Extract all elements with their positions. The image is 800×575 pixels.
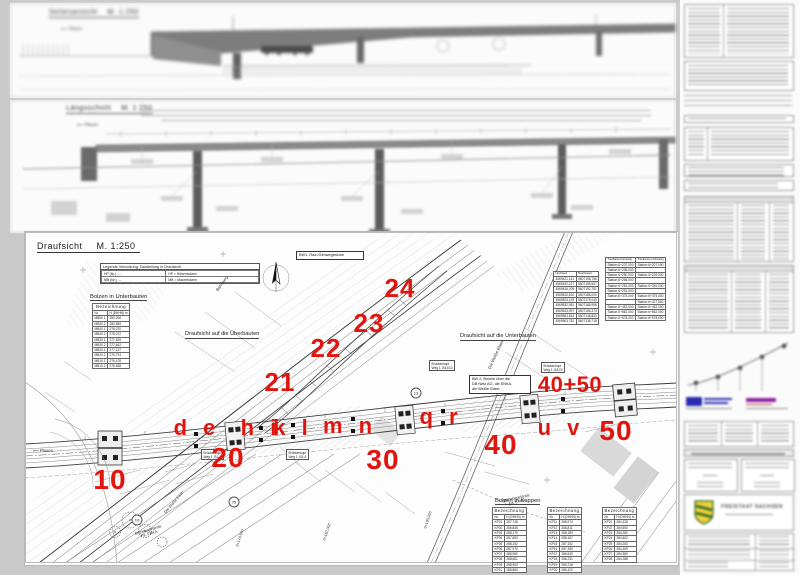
annotation-text-row — [161, 120, 641, 125]
table-cell: Station 6+239,000 — [635, 273, 665, 278]
circled-point: 13 — [411, 388, 422, 399]
table-cell: 288,860 — [504, 568, 526, 573]
long-section-title: LängsschnittM. 1:250 — [66, 105, 153, 114]
notes-bar — [684, 449, 794, 457]
table-cell: Station 6+452,000 — [606, 305, 636, 310]
sheet-side-view-content: SeitenansichtM. 1:250 Plauen — [10, 3, 676, 98]
annotation-uv: u v — [538, 417, 585, 439]
annotation-kl: k l — [273, 417, 312, 439]
table-cell: MB20.1 — [93, 348, 108, 353]
table-cell: 5607138,718 — [576, 319, 599, 324]
label-brueckenkopf-3: Brückenkopf Weg 1, B41/10 — [429, 360, 455, 371]
table-cell: Station 6+452,000 — [635, 305, 665, 310]
annotation-text-row — [141, 110, 651, 116]
annotation-de: d e — [174, 417, 221, 439]
table-row: MB10.2276,638 — [93, 364, 130, 369]
annotation-23: 23 — [354, 310, 385, 336]
table-header: Bezeichnung — [93, 304, 130, 311]
notes-table — [684, 196, 794, 262]
signature-box — [684, 459, 738, 492]
title-block-content: FREISTAAT SACHSEN — [680, 0, 800, 575]
table-header: Bezeichnung — [493, 508, 527, 515]
table-cell: KP28 — [603, 557, 615, 562]
side-view-title-text: Seitenansicht — [49, 9, 98, 16]
table-cell: Station 6+291,000 — [606, 289, 636, 294]
annotation-22: 22 — [311, 335, 342, 361]
stations-col-2: Traufkante rechtsseitig — [635, 258, 665, 263]
label-plauen: Plauen — [33, 448, 53, 453]
table-cell: 5607148,853 — [576, 313, 599, 318]
annotation-mn: m n — [323, 415, 377, 437]
table-cell: Station 6+281,000 — [606, 283, 636, 288]
table-cell: 276,638 — [108, 364, 130, 369]
sheet-plan-view: DraufsichtM. 1:250 Legende Verbolzung: D… — [24, 231, 679, 566]
table-cell: Station 6+250,000 — [606, 273, 636, 278]
table-cell: 5607192,781 — [576, 287, 599, 292]
notes-bar — [684, 115, 794, 123]
kappen-table-1: Bezeichnung Nr.H (DHHN) m KP01287,748KP0… — [492, 507, 527, 573]
table-cell: KP20 — [548, 568, 560, 573]
annotation-40-50: 40+50 — [538, 374, 602, 396]
table-cell: 5607168,996 — [576, 303, 599, 308]
notes-box — [684, 4, 794, 58]
col-h: H (DHHN) m — [614, 514, 636, 519]
freistaat-box: FREISTAAT SACHSEN — [684, 494, 794, 531]
label-bw2: BW 2, Brücke über die DB Netz AG, die EN… — [469, 375, 531, 394]
notes-lines — [684, 95, 794, 111]
long-section-title-text: Längsschnitt — [66, 105, 111, 112]
notes-box — [684, 164, 794, 177]
bolzen-unterbauten-title: Bolzen in Unterbauten — [90, 294, 147, 301]
north-arrow-icon — [263, 262, 289, 292]
freistaat-sachsen-label: FREISTAAT SACHSEN — [721, 504, 783, 510]
table-row: KP10288,860 — [493, 568, 527, 573]
table-cell: Station 6+281,000 — [635, 283, 665, 288]
label-view-ueberbauten: Draufsicht auf die Überbauten — [185, 331, 259, 339]
plan-title-text: Draufsicht — [37, 241, 83, 251]
annotation-40: 40 — [484, 431, 517, 459]
table-cell: MB50.1 — [93, 316, 108, 321]
signature-box — [741, 459, 795, 492]
title-block-panel: FREISTAAT SACHSEN — [679, 0, 800, 575]
side-view-drawing — [11, 4, 677, 99]
notes-box — [684, 127, 794, 161]
table-cell: MB30.2 — [93, 342, 108, 347]
annotation-10: 10 — [93, 466, 126, 494]
saxony-shield-icon — [693, 499, 715, 527]
logo-purple — [746, 398, 776, 402]
notes-box — [684, 180, 794, 191]
circled-point: 10 — [132, 515, 143, 526]
table-row: KP28284,288 — [603, 557, 637, 562]
long-section-direction: Plauen — [77, 122, 98, 128]
table-row: KP20285,420 — [548, 568, 582, 573]
notes-table — [684, 421, 794, 447]
plan-title: DraufsichtM. 1:250 — [37, 241, 140, 253]
pier-30 — [395, 405, 415, 434]
notes-table — [684, 265, 794, 333]
drawing-page: SeitenansichtM. 1:250 Plauen — [0, 0, 800, 575]
table-row: MB (Nr.) .....MB = Mauerbolzen — [102, 277, 259, 283]
plan-scale: M. 1:250 — [97, 241, 136, 251]
annotation-24: 24 — [385, 275, 416, 301]
table-cell: MB30.1 — [93, 337, 108, 342]
table-cell: MB = Mauerbolzen — [166, 277, 259, 283]
annotation-50: 50 — [599, 417, 632, 445]
kappen-table-2: Bezeichnung Nr.H (DHHN) m KP11288,974KP1… — [547, 507, 582, 573]
side-view-title: SeitenansichtM. 1:250 — [49, 9, 139, 18]
annotation-30: 30 — [366, 446, 399, 474]
table-cell: 5607198,758 — [576, 276, 599, 281]
table-row: 4569563,7815607138,718 — [554, 319, 599, 324]
table-header: Bezeichnung — [548, 508, 582, 515]
table-cell: Station 6+562,000 — [635, 310, 665, 315]
annotation-qr: q r — [419, 406, 462, 428]
table-cell: 4569553,543 — [554, 313, 577, 318]
table-cell: MB20.2 — [93, 353, 108, 358]
col-h: H (DHHN) m — [504, 514, 526, 519]
table-cell: Station 6+427,500 — [635, 299, 665, 304]
table-cell: Station 6+375,000 — [606, 294, 636, 299]
kappen-table-3: Bezeichnung Nr.H (DHHN) m KP21284,328KP2… — [602, 507, 637, 563]
table-cell: 4569543,997 — [554, 308, 577, 313]
table-cell: 5607156,374 — [576, 308, 599, 313]
table-cell: MB10.1 — [93, 358, 108, 363]
title-table — [684, 533, 794, 571]
table-cell: 4569510,810 — [554, 292, 577, 297]
sheet-side-view: SeitenansichtM. 1:250 Plauen — [10, 3, 676, 98]
table-cell: Station 6+562,000 — [606, 310, 636, 315]
label-bw1: BW1, Rad-/Gehwegbrücke — [296, 251, 364, 260]
table-cell: Station 6+578,000 — [606, 315, 636, 320]
legend-table: HP (Nr.) .....HP = HöhenbolzenMB (Nr.) .… — [101, 270, 259, 283]
table-cell: Station 6+265,000 — [606, 278, 636, 283]
table-cell: 4569563,781 — [554, 319, 577, 324]
abutment-10 — [98, 431, 122, 465]
abutment-50 — [613, 383, 638, 417]
table-cell: Station 6+578,000 — [635, 315, 665, 320]
annotation-20: 20 — [211, 444, 244, 472]
sheet-long-section: LängsschnittM. 1:250 Plauen — [10, 100, 676, 233]
table-cell: MB50.2 — [93, 321, 108, 326]
logo-blue — [686, 397, 702, 406]
stations-table: Traufkante linksseitig Traufkante rechts… — [605, 257, 666, 321]
stations-col-1: Traufkante linksseitig — [606, 258, 636, 263]
mini-sketch — [684, 337, 794, 393]
table-row: Station 6+578,000Station 6+578,000 — [606, 315, 666, 320]
sheet-long-section-content: LängsschnittM. 1:250 Plauen — [10, 100, 676, 233]
table-cell: 4569436,209 — [554, 287, 577, 292]
col-h: H (DHHN) m — [559, 514, 581, 519]
table-cell: 284,288 — [614, 557, 636, 562]
table-cell: 5607195,967 — [576, 282, 599, 287]
table-cell: KP10 — [493, 568, 505, 573]
table-header: Bezeichnung — [603, 508, 637, 515]
side-view-direction: Plauen — [61, 26, 82, 32]
circled-point: 75 — [229, 497, 240, 508]
notes-box — [684, 61, 794, 91]
label-view-unterbauten: Draufsicht auf die Unterbauten — [460, 333, 536, 341]
table-cell: 4569421,141 — [554, 276, 577, 281]
table-cell: 4569430,217 — [554, 282, 577, 287]
table-cell: Station 6+207,000 — [635, 262, 665, 267]
annotation-21: 21 — [265, 369, 296, 395]
table-cell: 285,420 — [559, 568, 581, 573]
table-cell: MB10.2 — [93, 364, 108, 369]
side-view-scale: M. 1:250 — [108, 9, 139, 16]
legend-box: Legende Verbolzung: Darstellung in Drauf… — [100, 263, 260, 284]
table-cell: 5607188,000 — [576, 292, 599, 297]
table-cell: Station 6+375,000 — [635, 294, 665, 299]
logos-row — [684, 395, 794, 419]
table-cell: MB40.1 — [93, 326, 108, 331]
table-cell: 5607179,040 — [576, 298, 599, 303]
table-cell: Station 6+207,000 — [606, 262, 636, 267]
table-cell: MB (Nr.) ..... — [102, 277, 166, 283]
signature-row — [684, 459, 794, 492]
table-cell: 4569523,193 — [554, 298, 577, 303]
table-cell: Station 6+236,000 — [606, 267, 636, 272]
coords-table: Hochwert Rechtswert 4569421,1415607198,7… — [553, 271, 599, 325]
table-cell: 4569532,981 — [554, 303, 577, 308]
col-h: H (DHHN) m — [108, 310, 130, 315]
table-cell: MB40.2 — [93, 332, 108, 337]
label-brueckenkopf-2: Brückenkopf Weg 1, B3-4 — [286, 449, 309, 460]
bolzen-unterbauten-table: Bezeichnung Nr.H (DHHN) m MB50.1280,208M… — [92, 303, 130, 369]
